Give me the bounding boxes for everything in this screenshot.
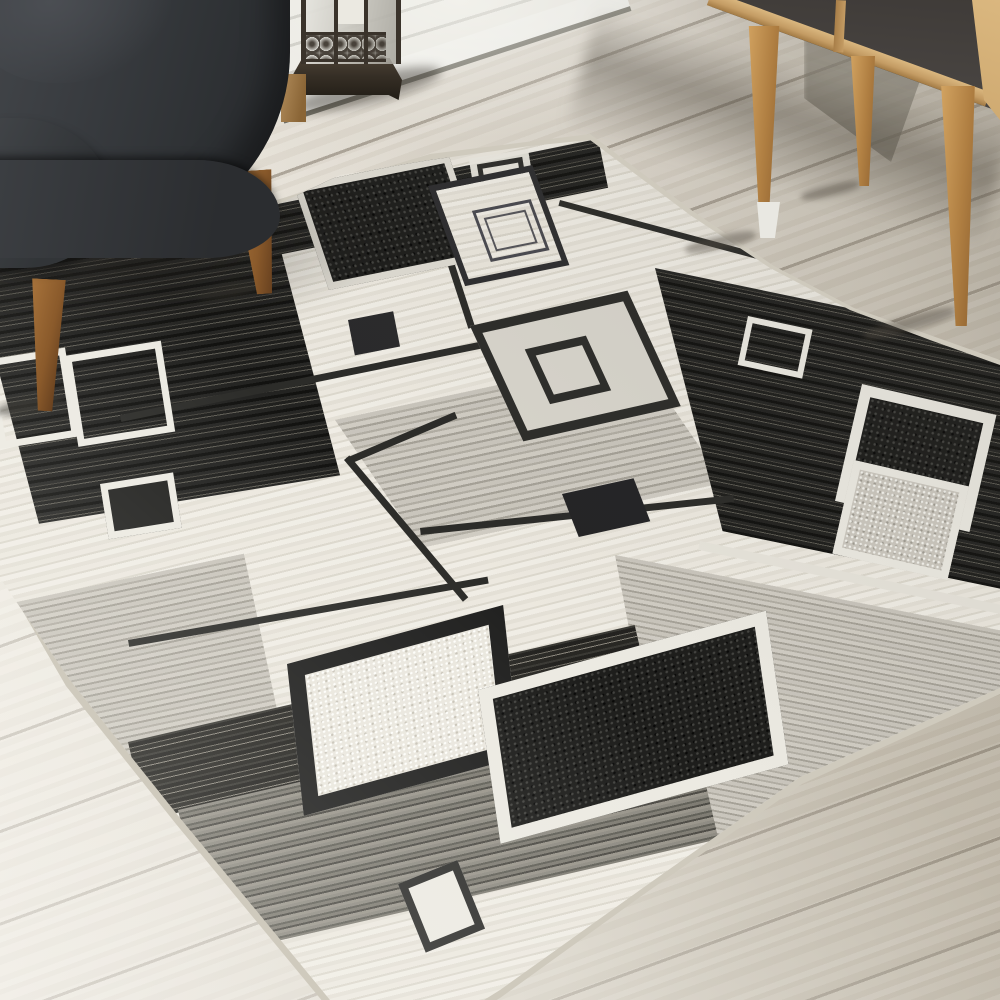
lantern-glass [301, 0, 401, 64]
candle [336, 0, 366, 24]
living-room-photo: Photograph of a living room corner: a bl… [0, 0, 1000, 1000]
lantern-base [290, 58, 402, 100]
chair-seat-front [0, 160, 280, 258]
lantern-scroll-band [306, 32, 386, 62]
